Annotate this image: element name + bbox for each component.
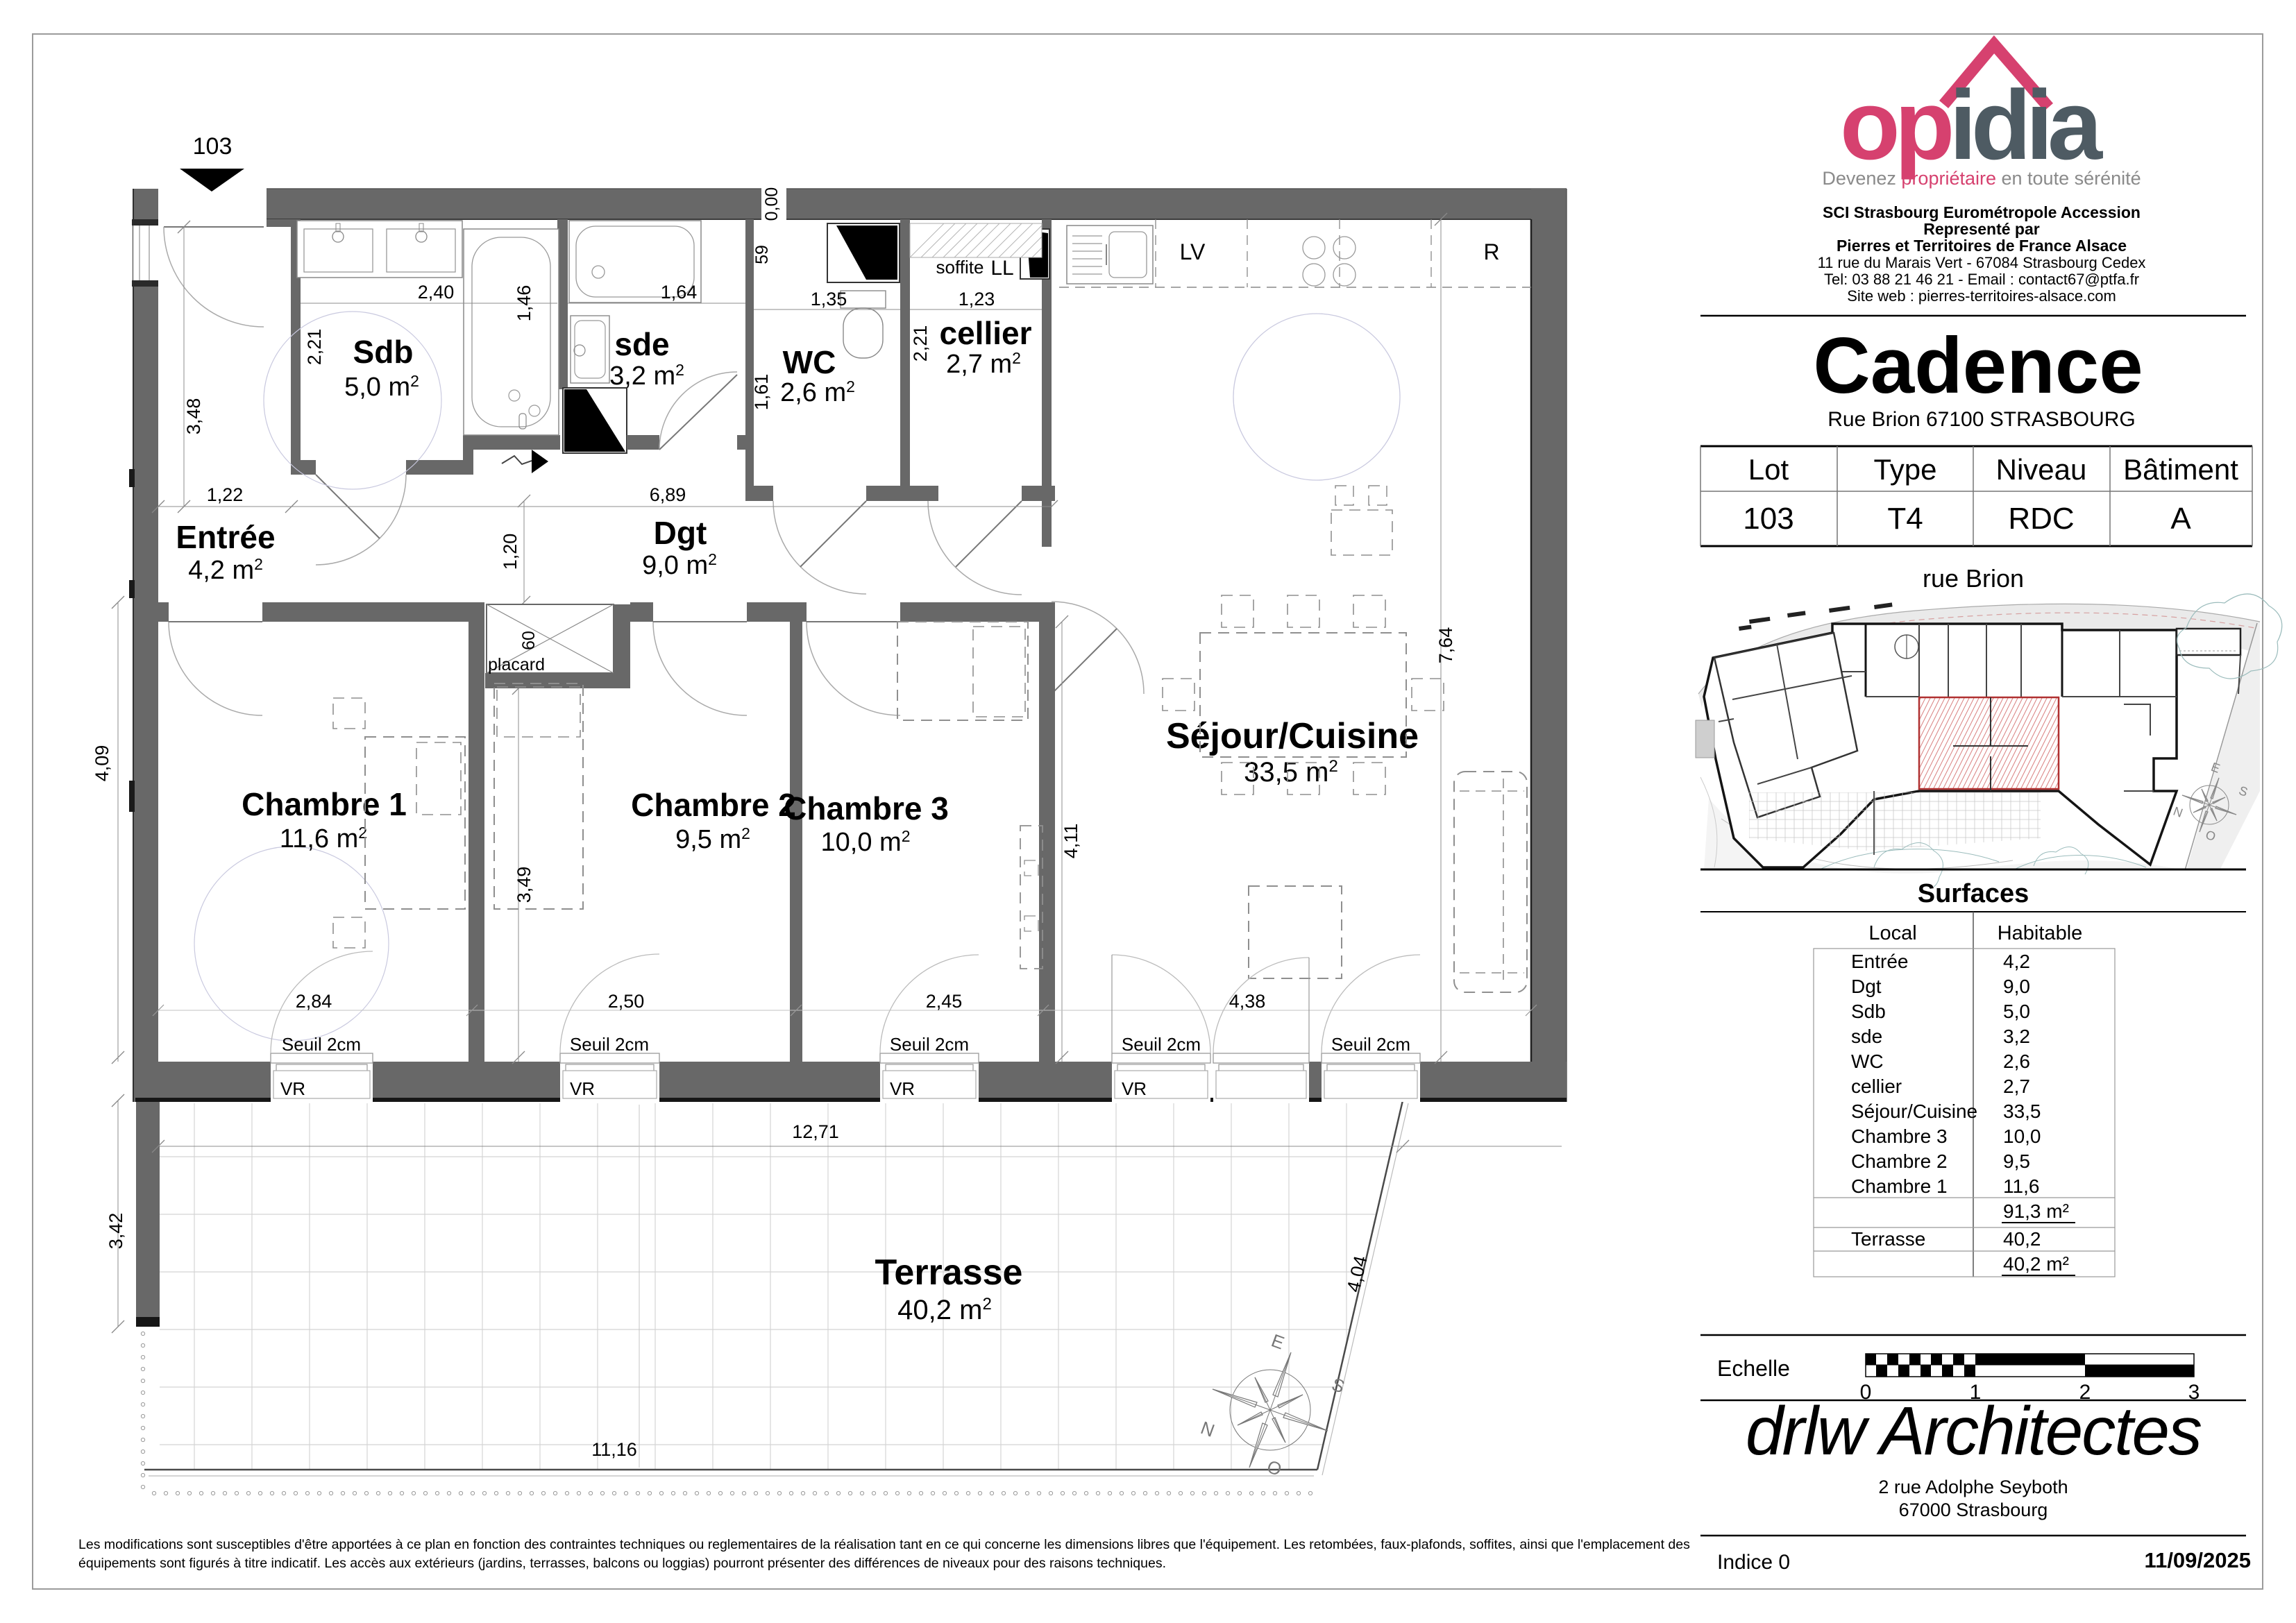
svg-text:Seuil 2cm: Seuil 2cm	[570, 1034, 649, 1055]
svg-text:Chambre 3: Chambre 3	[1851, 1125, 1948, 1147]
svg-text:Cadence: Cadence	[1813, 322, 2143, 410]
svg-text:Séjour/Cuisine: Séjour/Cuisine	[1851, 1101, 1977, 1122]
svg-text:Chambre 2: Chambre 2	[1851, 1150, 1948, 1172]
svg-text:Séjour/Cuisine: Séjour/Cuisine	[1166, 716, 1419, 756]
svg-text:2,45: 2,45	[926, 991, 963, 1012]
svg-text:12,71: 12,71	[792, 1121, 839, 1142]
svg-text:3,2: 3,2	[2003, 1026, 2030, 1047]
svg-text:2,21: 2,21	[304, 329, 325, 366]
svg-text:2,50: 2,50	[608, 991, 645, 1012]
svg-text:2,7 m2: 2,7 m2	[946, 349, 1021, 379]
svg-text:E: E	[1269, 1329, 1288, 1353]
svg-text:VR: VR	[280, 1078, 305, 1099]
svg-text:LV: LV	[1180, 239, 1206, 264]
svg-text:3,49: 3,49	[514, 867, 534, 903]
svg-text:2 rue Adolphe Seyboth: 2 rue Adolphe Seyboth	[1878, 1477, 2068, 1497]
svg-text:2,6 m2: 2,6 m2	[780, 377, 855, 407]
svg-text:40,2 m2: 40,2 m2	[897, 1295, 992, 1325]
svg-text:4,11: 4,11	[1061, 824, 1081, 859]
svg-text:4,38: 4,38	[1229, 991, 1266, 1012]
svg-text:60: 60	[519, 631, 539, 650]
svg-text:Type: Type	[1873, 453, 1936, 486]
svg-text:Entrée: Entrée	[1851, 951, 1909, 972]
svg-text:1,23: 1,23	[959, 289, 995, 309]
svg-text:Les modifications sont suscept: Les modifications sont susceptibles d'êt…	[78, 1537, 1690, 1552]
svg-text:6,89: 6,89	[650, 484, 686, 505]
svg-text:R: R	[1483, 239, 1499, 264]
svg-text:Seuil 2cm: Seuil 2cm	[890, 1034, 969, 1055]
svg-text:Terrasse: Terrasse	[875, 1252, 1023, 1293]
svg-text:Sdb: Sdb	[353, 334, 414, 370]
svg-text:11,6 m2: 11,6 m2	[280, 824, 367, 853]
svg-text:Rue Brion 67100 STRASBOURG: Rue Brion 67100 STRASBOURG	[1827, 408, 2136, 431]
svg-text:sde: sde	[614, 326, 669, 362]
svg-text:0,00: 0,00	[762, 187, 782, 221]
svg-text:Chambre 2: Chambre 2	[631, 787, 796, 823]
svg-text:Pierres et Territoires de Fran: Pierres et Territoires de France Alsace	[1837, 237, 2127, 255]
svg-text:Chambre 3: Chambre 3	[784, 790, 949, 826]
svg-text:Dgt: Dgt	[1851, 976, 1882, 997]
svg-text:Representé par: Representé par	[1923, 220, 2040, 238]
svg-text:2,21: 2,21	[910, 325, 931, 362]
svg-text:4,2: 4,2	[2003, 951, 2030, 972]
svg-text:Terrasse: Terrasse	[1851, 1228, 1925, 1250]
svg-text:WC: WC	[783, 344, 836, 380]
svg-text:Seuil 2cm: Seuil 2cm	[282, 1034, 361, 1055]
svg-text:10,0 m2: 10,0 m2	[821, 827, 911, 857]
svg-text:67000 Strasbourg: 67000 Strasbourg	[1899, 1499, 2048, 1520]
svg-text:4,04: 4,04	[1343, 1254, 1371, 1294]
svg-text:Niveau: Niveau	[1996, 453, 2087, 486]
svg-text:11,6: 11,6	[2003, 1175, 2039, 1197]
svg-text:VR: VR	[890, 1078, 915, 1099]
svg-text:1,35: 1,35	[811, 289, 847, 309]
svg-text:11/09/2025: 11/09/2025	[2145, 1548, 2251, 1572]
svg-text:sde: sde	[1851, 1026, 1882, 1047]
svg-text:Seuil 2cm: Seuil 2cm	[1122, 1034, 1201, 1055]
svg-text:Lot: Lot	[1748, 453, 1789, 486]
svg-text:10,0: 10,0	[2003, 1125, 2041, 1147]
svg-text:WC: WC	[1851, 1051, 1884, 1072]
svg-text:Surfaces: Surfaces	[1918, 879, 2029, 908]
svg-text:1,61: 1,61	[751, 374, 772, 411]
svg-text:N: N	[1198, 1417, 1217, 1441]
svg-text:Tel: 03 88 21 46 21 - Email :: Tel: 03 88 21 46 21 - Email : contact67@…	[1824, 271, 2139, 288]
svg-text:33,5: 33,5	[2003, 1101, 2041, 1122]
svg-text:SCI Strasbourg Eurométropole A: SCI Strasbourg Eurométropole Accession	[1823, 203, 2141, 221]
svg-text:Seuil 2cm: Seuil 2cm	[1331, 1034, 1410, 1055]
svg-text:Indice 0: Indice 0	[1717, 1551, 1790, 1574]
svg-text:4,2 m2: 4,2 m2	[188, 555, 263, 585]
svg-text:1,20: 1,20	[500, 534, 521, 570]
svg-text:Local: Local	[1868, 922, 1916, 944]
svg-text:LL: LL	[990, 257, 1013, 280]
svg-text:1,22: 1,22	[207, 484, 244, 505]
svg-text:3,2 m2: 3,2 m2	[609, 361, 684, 391]
svg-text:O: O	[1264, 1456, 1284, 1480]
svg-text:Bâtiment: Bâtiment	[2123, 453, 2238, 486]
svg-text:9,0 m2: 9,0 m2	[642, 550, 717, 580]
svg-text:59: 59	[752, 245, 772, 264]
svg-text:91,3 m²: 91,3 m²	[2003, 1200, 2069, 1222]
svg-text:9,5: 9,5	[2003, 1150, 2030, 1172]
svg-text:Entrée: Entrée	[176, 519, 275, 555]
svg-text:103: 103	[1743, 502, 1793, 536]
svg-text:11,16: 11,16	[591, 1439, 637, 1460]
svg-text:5,0: 5,0	[2003, 1001, 2030, 1022]
svg-text:3,48: 3,48	[183, 398, 204, 435]
svg-text:40,2: 40,2	[2003, 1228, 2041, 1250]
svg-text:3,42: 3,42	[105, 1213, 126, 1250]
svg-text:Devenez propriétaire en toute: Devenez propriétaire en toute sérénité	[1822, 168, 2141, 189]
svg-text:drlw Architectes: drlw Architectes	[1746, 1393, 2201, 1469]
svg-text:9,0: 9,0	[2003, 976, 2030, 997]
svg-text:Habitable: Habitable	[1998, 922, 2083, 944]
svg-text:cellier: cellier	[940, 315, 1032, 351]
svg-text:2,6: 2,6	[2003, 1051, 2030, 1072]
svg-text:2,40: 2,40	[418, 282, 455, 303]
svg-text:Chambre 1: Chambre 1	[1851, 1175, 1948, 1197]
svg-text:rue Brion: rue Brion	[1923, 564, 2024, 593]
svg-text:103: 103	[193, 133, 233, 160]
svg-text:Sdb: Sdb	[1851, 1001, 1886, 1022]
svg-text:Echelle: Echelle	[1717, 1356, 1790, 1381]
svg-text:VR: VR	[570, 1078, 595, 1099]
svg-text:S: S	[1329, 1373, 1348, 1397]
svg-text:cellier: cellier	[1851, 1076, 1902, 1097]
svg-text:7,64: 7,64	[1435, 627, 1456, 664]
svg-text:A: A	[2170, 502, 2191, 536]
svg-text:33,5 m2: 33,5 m2	[1244, 757, 1338, 788]
svg-text:Dgt: Dgt	[654, 515, 707, 551]
svg-text:placard: placard	[488, 655, 545, 674]
svg-text:soffite: soffite	[936, 257, 984, 278]
svg-text:VR: VR	[1122, 1078, 1147, 1099]
svg-text:Chambre 1: Chambre 1	[242, 786, 407, 822]
svg-text:2,84: 2,84	[296, 991, 332, 1012]
svg-text:N: N	[2172, 804, 2185, 820]
svg-text:4,09: 4,09	[92, 745, 112, 782]
svg-text:Site web : pierres-territoires: Site web : pierres-territoires-alsace.co…	[1847, 287, 2116, 305]
svg-text:11 rue du Marais Vert - 67084: 11 rue du Marais Vert - 67084 Strasbourg…	[1818, 254, 2146, 271]
svg-text:RDC: RDC	[2008, 502, 2074, 536]
svg-text:40,2 m²: 40,2 m²	[2003, 1253, 2069, 1275]
svg-text:1,64: 1,64	[661, 282, 698, 303]
svg-text:opidia: opidia	[1840, 70, 2103, 180]
svg-text:2,7: 2,7	[2003, 1076, 2030, 1097]
svg-text:équipements sont figurés à tit: équipements sont figurés à titre indicat…	[78, 1556, 1166, 1571]
svg-text:5,0 m2: 5,0 m2	[344, 372, 419, 402]
svg-text:1,46: 1,46	[514, 285, 534, 322]
svg-text:T4: T4	[1887, 502, 1923, 536]
svg-text:9,5 m2: 9,5 m2	[675, 824, 750, 854]
